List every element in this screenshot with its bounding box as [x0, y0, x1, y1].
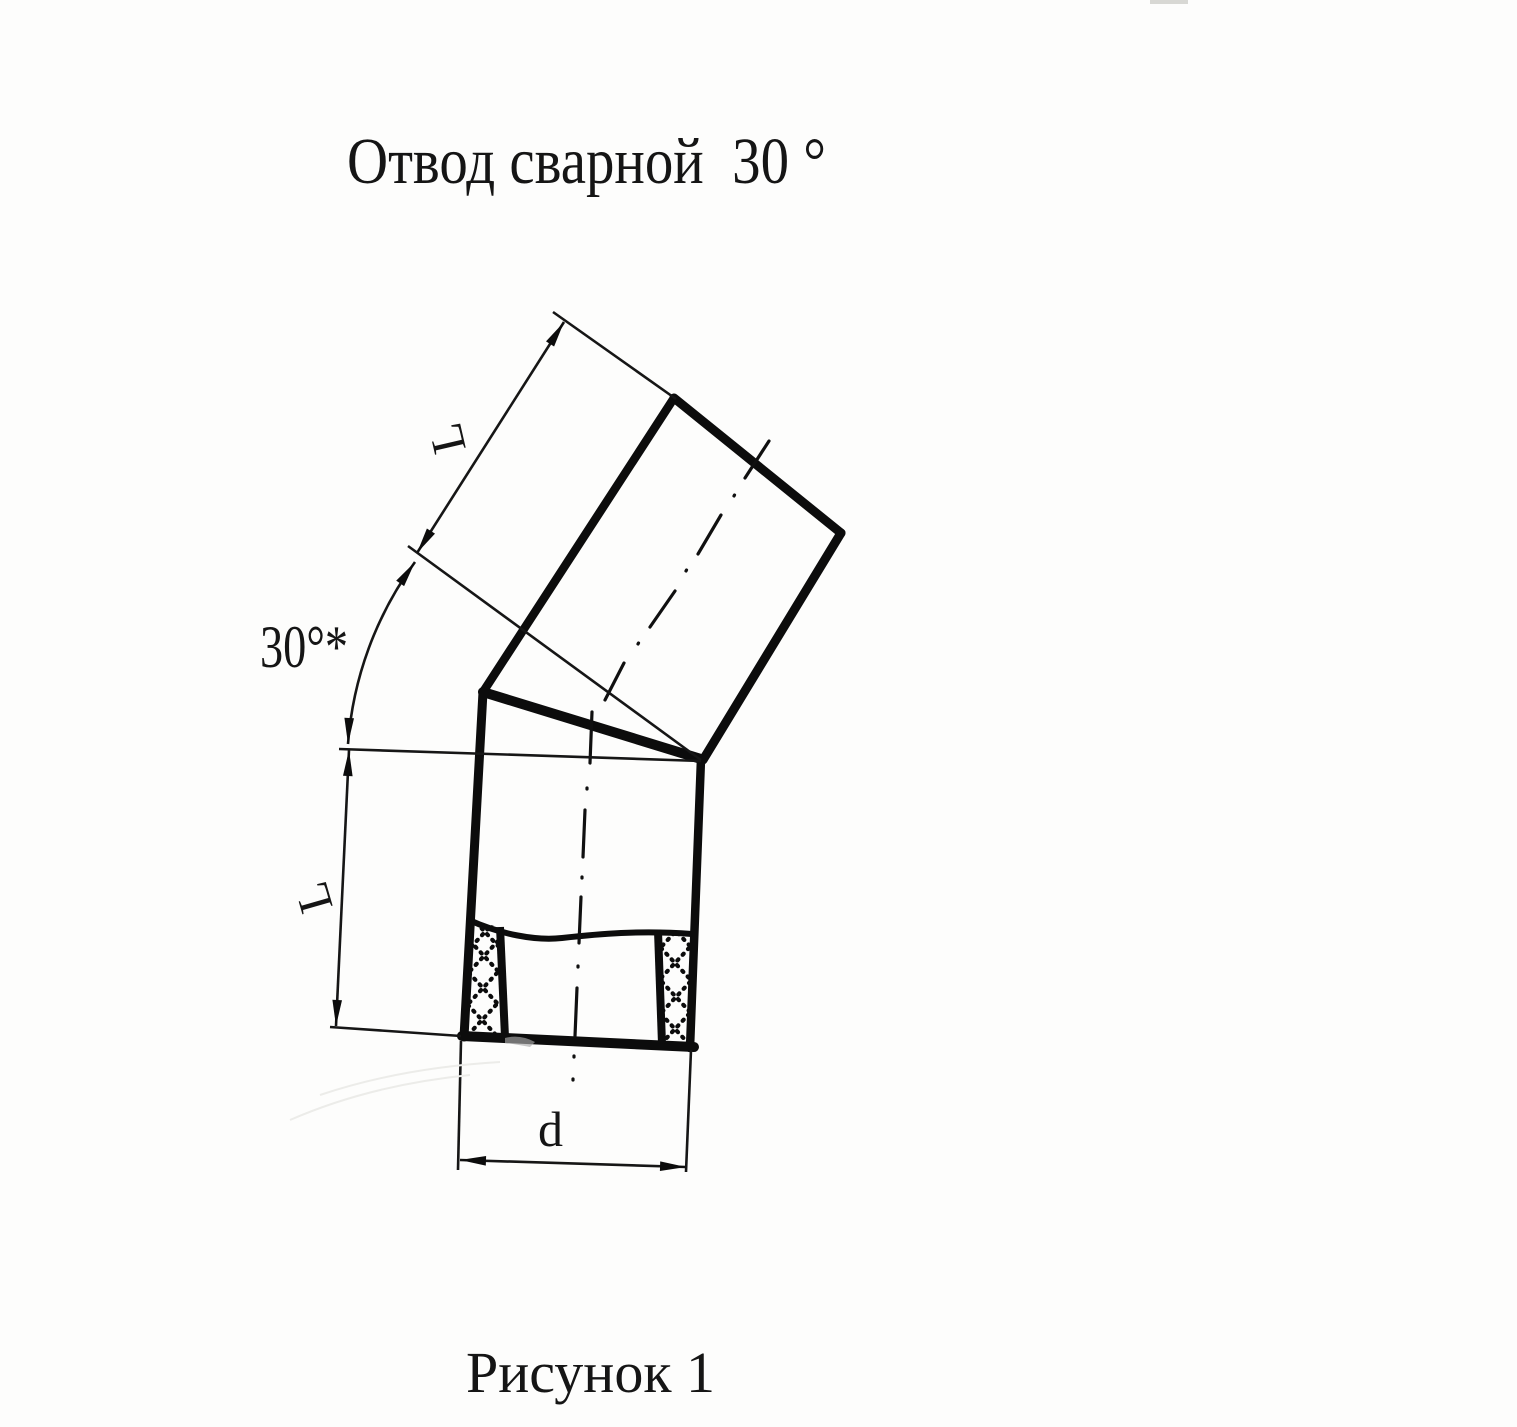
svg-text:30°*: 30°*	[260, 614, 348, 680]
svg-text:Рисунок 1: Рисунок 1	[466, 1340, 715, 1405]
svg-text:Отвод сварной 30 °: Отвод сварной 30 °	[347, 125, 826, 198]
svg-text:d: d	[538, 1101, 563, 1157]
